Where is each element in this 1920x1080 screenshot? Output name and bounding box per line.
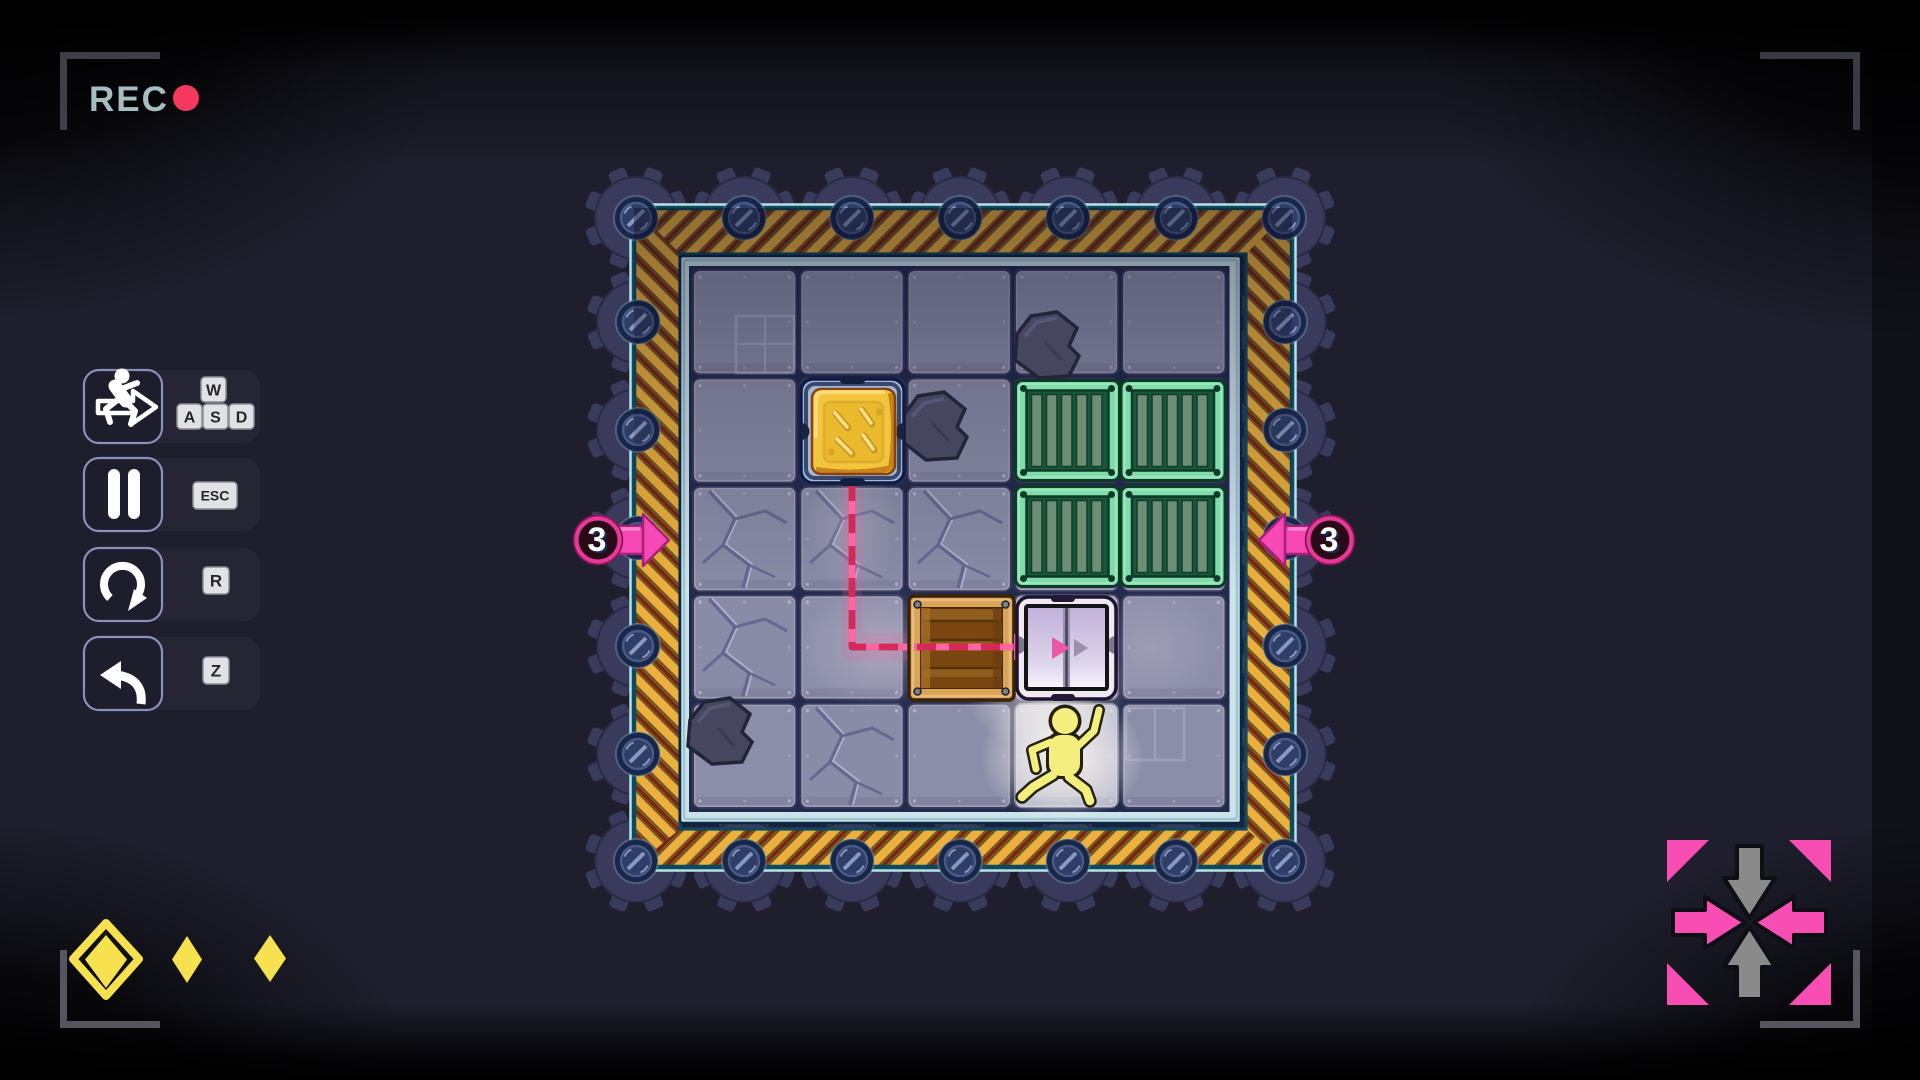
svg-text:3: 3 [1320,521,1339,559]
svg-text:S: S [210,409,221,426]
svg-text:W: W [206,382,222,399]
svg-text:ESC: ESC [201,488,230,504]
svg-text:REC: REC [89,80,169,119]
svg-text:D: D [236,409,248,426]
svg-text:3: 3 [588,521,607,559]
svg-text:Z: Z [211,662,221,681]
svg-text:R: R [210,572,222,591]
svg-text:A: A [184,409,196,426]
